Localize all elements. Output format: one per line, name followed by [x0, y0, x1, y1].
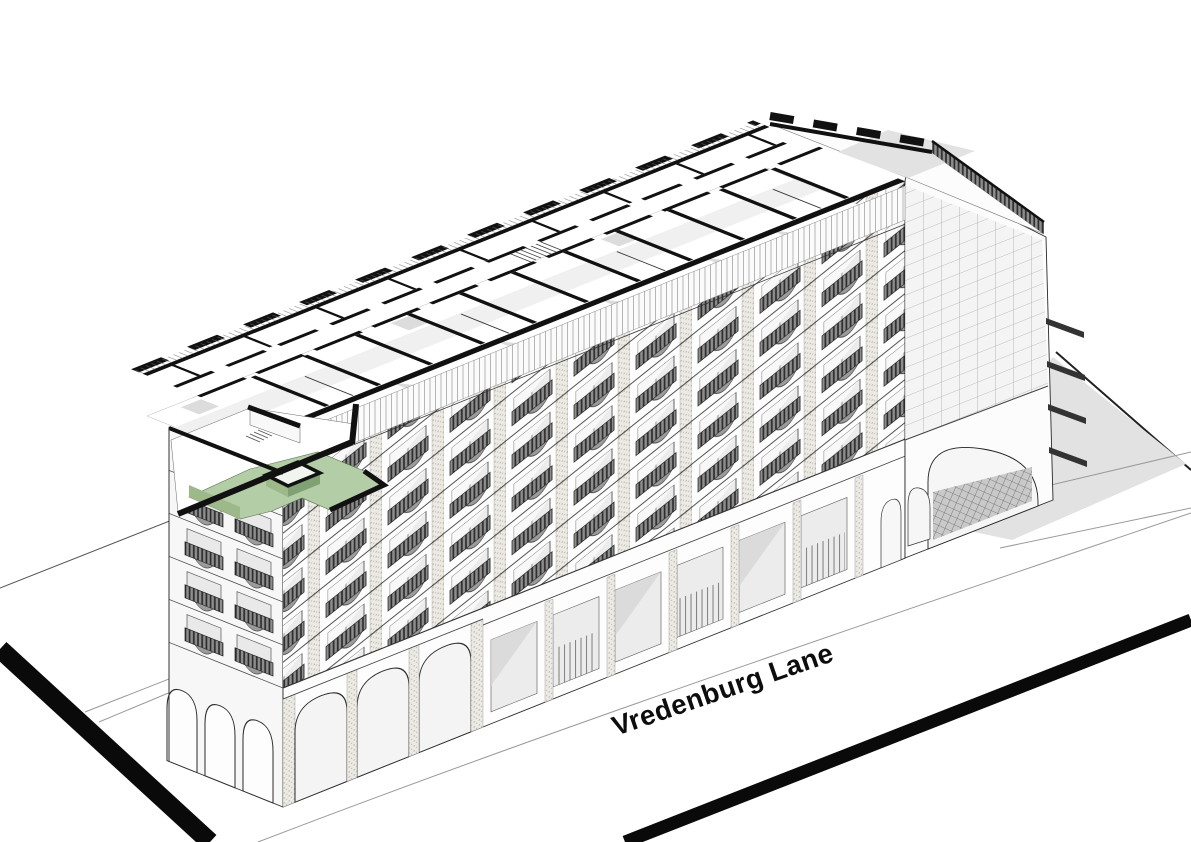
street-edge-thick-front: [625, 620, 1191, 842]
arcade-pier: [347, 669, 357, 781]
side-door-arch: [908, 488, 930, 546]
arcade-pier: [471, 619, 483, 732]
arcade-pier: [283, 694, 295, 807]
axonometric-figure: Vredenburg Lane: [0, 0, 1191, 842]
site-axonometric-drawing: Vredenburg Lane: [0, 0, 1191, 842]
cut-step-band: [352, 404, 356, 444]
arcade-pier: [409, 645, 419, 757]
side-balcony: [1046, 318, 1084, 338]
door-arch: [881, 496, 901, 568]
